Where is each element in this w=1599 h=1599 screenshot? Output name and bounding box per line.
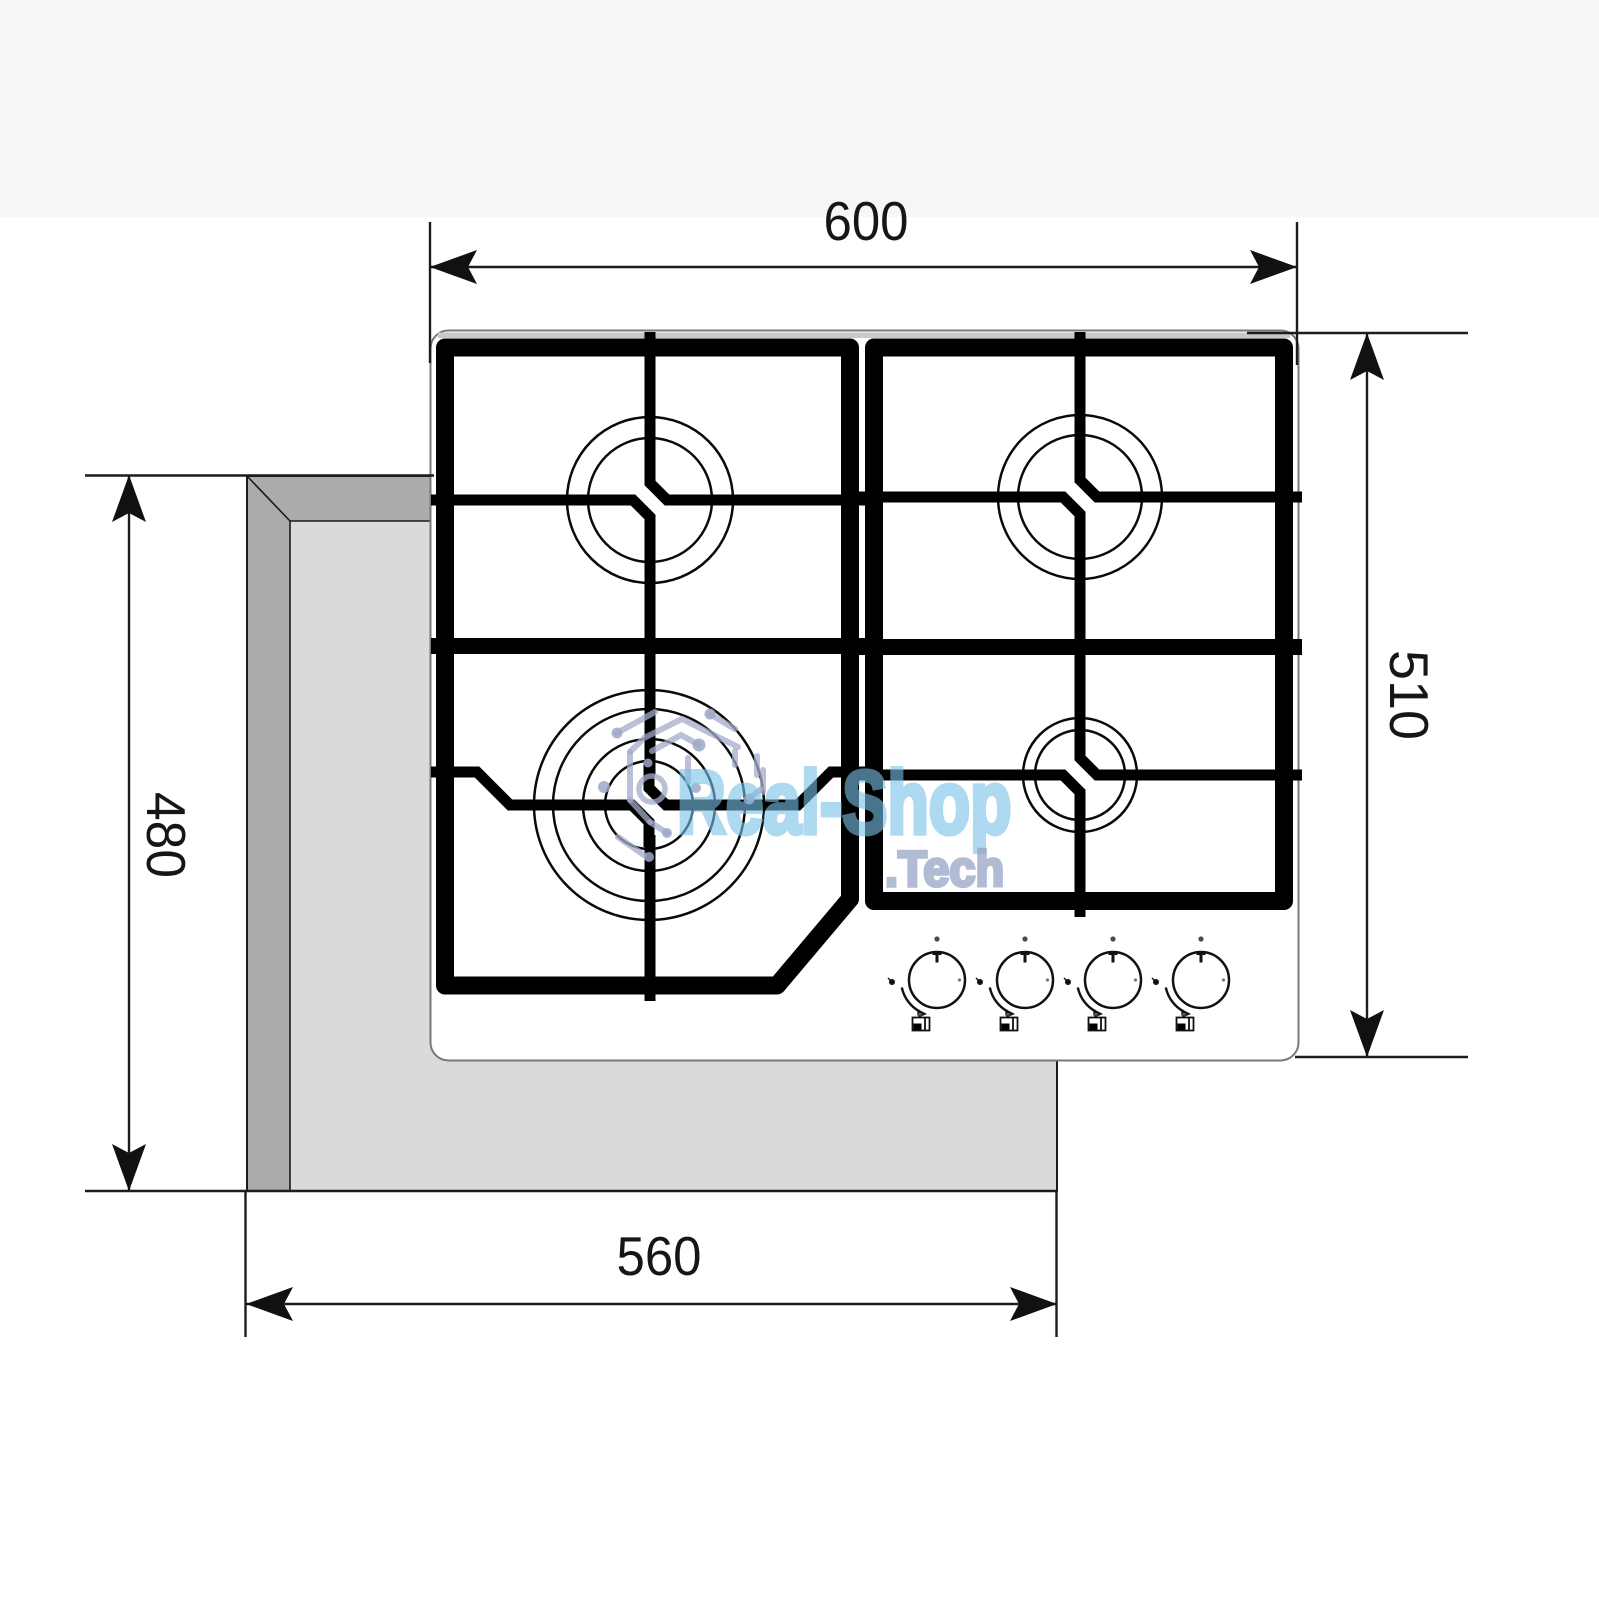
svg-text:560: 560 (617, 1225, 702, 1287)
svg-text:480: 480 (135, 792, 197, 878)
svg-text:Real-Shop: Real-Shop (677, 752, 1011, 852)
svg-text:510: 510 (1378, 650, 1440, 740)
svg-text:600: 600 (824, 190, 909, 252)
svg-text:.Tech: .Tech (885, 842, 1004, 898)
